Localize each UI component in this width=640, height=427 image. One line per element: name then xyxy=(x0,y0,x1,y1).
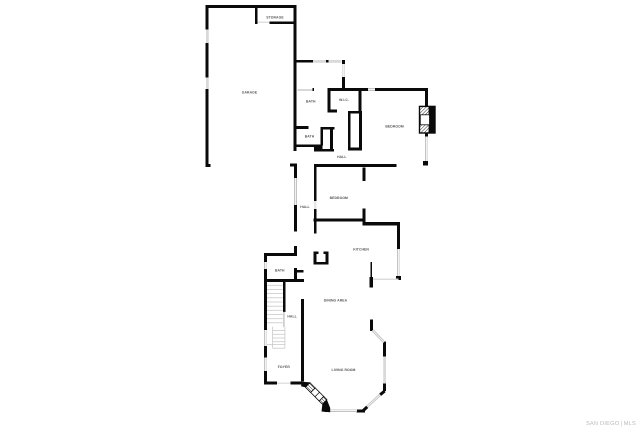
svg-text:BATH: BATH xyxy=(275,268,285,272)
svg-text:HALL: HALL xyxy=(287,315,296,319)
svg-text:BATH: BATH xyxy=(305,135,315,139)
svg-text:BEDROOM: BEDROOM xyxy=(330,196,348,200)
svg-text:HALL: HALL xyxy=(300,205,309,209)
svg-text:W.I.C.: W.I.C. xyxy=(339,98,349,102)
svg-text:BEDROOM: BEDROOM xyxy=(385,124,403,128)
svg-text:FOYER: FOYER xyxy=(278,365,291,369)
svg-text:HALL: HALL xyxy=(337,155,346,159)
svg-text:BATH: BATH xyxy=(306,100,316,104)
svg-text:DINING AREA: DINING AREA xyxy=(324,298,348,302)
svg-text:KITCHEN: KITCHEN xyxy=(353,248,369,252)
svg-text:STORAGE: STORAGE xyxy=(266,16,284,20)
svg-text:SAN DIEGO | MLS: SAN DIEGO | MLS xyxy=(586,420,636,427)
svg-text:LIVING ROOM: LIVING ROOM xyxy=(332,368,356,372)
svg-text:GARAGE: GARAGE xyxy=(242,91,258,95)
